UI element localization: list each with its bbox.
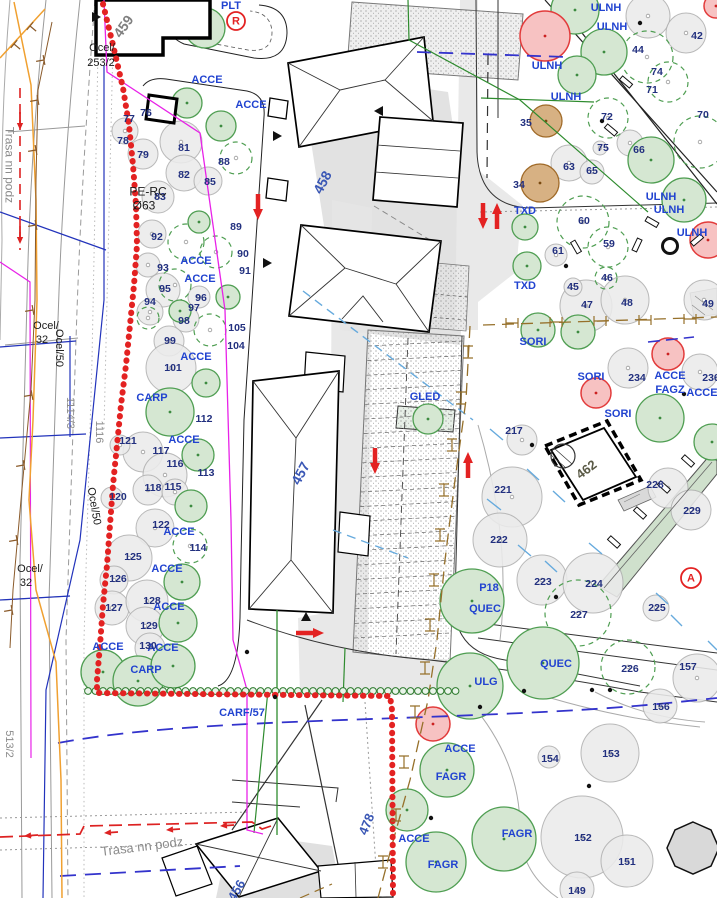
survey-point-11 [587, 784, 591, 788]
label-122-72: 122 [152, 519, 170, 531]
site-plan-canvas: RAPLTACCEACCEACCEACCEACCECARPACCEACCEACC… [0, 0, 717, 898]
label-TXD-23: TXD [514, 205, 536, 217]
label-75-98: 75 [597, 142, 609, 154]
label-79-43: 79 [137, 149, 149, 161]
tree-center [123, 129, 127, 133]
label-ULNH-21: ULNH [654, 204, 685, 216]
label-Ocel-50-135: Ocel/50 [53, 329, 65, 367]
label-234-109: 234 [628, 372, 646, 384]
tree-center [524, 226, 527, 229]
tree-center [181, 581, 184, 584]
label-1114-3-126: 1114/3 [64, 397, 76, 429]
label-FAGR-36: FAGR [436, 771, 467, 783]
tree-center [146, 263, 150, 267]
label-46-84: 46 [601, 272, 613, 284]
label-126-74: 126 [109, 573, 127, 585]
tree-center [208, 328, 212, 332]
porch-458-2 [266, 178, 288, 201]
label-ACCE-28: ACCE [654, 370, 685, 382]
label-CARF-57-14: CARF/57 [219, 707, 265, 719]
label-97-57: 97 [188, 302, 200, 314]
label-45-83: 45 [567, 281, 579, 293]
porch-458-1 [268, 98, 288, 119]
label-78-42: 78 [117, 135, 129, 147]
label-PE-RC-129: PE-RC [129, 185, 167, 199]
tree-center [190, 505, 193, 508]
label-118-69: 118 [145, 482, 162, 494]
label-Ocel--133: Ocel/ [17, 563, 44, 575]
tree-center [603, 51, 606, 54]
label-FAGR-39: FAGR [502, 828, 533, 840]
label-65-92: 65 [586, 165, 598, 177]
tree-center [172, 665, 175, 668]
label-72-96: 72 [601, 111, 613, 123]
label--63-130: Ø63 [133, 199, 156, 213]
tree-center [427, 418, 430, 421]
label-98-58: 98 [178, 315, 190, 327]
tree-center [666, 80, 670, 84]
label-92-52: 92 [151, 231, 163, 243]
site-plan-page: RAPLTACCEACCEACCEACCEACCECARPACCEACCEACC… [0, 0, 717, 898]
label-253-2-138: 253/2 [87, 57, 115, 69]
label-154-115: 154 [541, 753, 559, 765]
tree-center [406, 809, 409, 812]
tree-center [179, 310, 182, 313]
tree-center [626, 366, 630, 370]
label-71-95: 71 [646, 84, 658, 96]
label-221-100: 221 [494, 484, 512, 496]
tree-center [177, 622, 180, 625]
survey-point-3 [530, 443, 534, 447]
octagon-structure [667, 822, 717, 874]
label-82-45: 82 [178, 169, 190, 181]
label-ACCE-4: ACCE [184, 273, 215, 285]
tree-center [227, 296, 230, 299]
tree-center [576, 74, 579, 77]
hedge-shrub [85, 688, 92, 695]
label-120-70: 120 [109, 491, 127, 503]
tree-center [471, 600, 474, 603]
survey-point-8 [245, 650, 249, 654]
label-ACCE-9: ACCE [151, 563, 182, 575]
label-117-68: 117 [153, 445, 170, 457]
label-91-51: 91 [239, 265, 251, 277]
label-93-53: 93 [157, 262, 169, 274]
tree-center [173, 283, 177, 287]
label-113-64: 113 [198, 467, 215, 479]
survey-point-6 [478, 705, 482, 709]
tree-center [169, 411, 172, 414]
label-101-60: 101 [164, 362, 182, 374]
label-116-67: 116 [167, 458, 184, 470]
tree-center [148, 310, 152, 314]
tree-center [432, 723, 435, 726]
tree-center [205, 382, 208, 385]
label-125-73: 125 [124, 551, 142, 563]
route-arrow-1 [31, 835, 38, 836]
hedge-shrub [452, 688, 459, 695]
hedge-shrub [430, 688, 437, 695]
label-ACCE-37: ACCE [398, 833, 429, 845]
tree-center [711, 441, 714, 444]
label-153-114: 153 [602, 748, 620, 760]
route-arrow-4 [227, 825, 234, 826]
label-FAGZ-29: FAGZ [655, 384, 685, 396]
tree-center [683, 199, 686, 202]
label-89-49: 89 [230, 221, 242, 233]
label-128-76: 128 [143, 595, 161, 607]
survey-point-0 [638, 21, 642, 25]
label-112-63: 112 [196, 413, 213, 425]
survey-point-13 [608, 688, 612, 692]
label-227-106: 227 [570, 609, 588, 621]
hedge-shrub [400, 688, 407, 695]
label-QUEC-33: QUEC [540, 658, 572, 670]
label-ACCE-2: ACCE [235, 99, 266, 111]
label-105-62: 105 [228, 322, 246, 334]
label-157-117: 157 [679, 661, 697, 673]
label-59-88: 59 [603, 238, 615, 250]
label-104-61: 104 [227, 340, 245, 352]
tree-center [539, 182, 542, 185]
hedge-shrub [445, 688, 452, 695]
hedge-shrub [422, 688, 429, 695]
label-CARP-6: CARP [136, 392, 167, 404]
survey-point-5 [590, 688, 594, 692]
tree-center [667, 353, 670, 356]
tree-center [537, 329, 540, 332]
label-48-86: 48 [621, 297, 633, 309]
label-49-87: 49 [702, 298, 714, 310]
tree-center [163, 473, 167, 477]
label-SORI-25: SORI [520, 336, 547, 348]
survey-point-10 [522, 689, 526, 693]
label-63-91: 63 [563, 161, 575, 173]
building-458-annex [373, 117, 463, 207]
label-Ocel--137: Ocel/ [89, 42, 116, 54]
tree-center [220, 125, 223, 128]
hedge-shrub [392, 688, 399, 695]
label-32-134: 32 [20, 577, 32, 589]
label-77-41: 77 [123, 113, 135, 125]
survey-point-4 [554, 595, 558, 599]
label-SORI-26: SORI [578, 371, 605, 383]
tree-center [650, 159, 653, 162]
label-121-71: 121 [119, 435, 137, 447]
tree-center [234, 156, 238, 160]
label-ACCE-11: ACCE [92, 641, 123, 653]
label-ULNH-20: ULNH [646, 191, 677, 203]
label-FAGR-38: FAGR [428, 859, 459, 871]
tree-center [645, 55, 649, 59]
label-ACCE-7: ACCE [168, 434, 199, 446]
label-94-54: 94 [144, 296, 156, 308]
label-114-65: 114 [190, 542, 207, 554]
label-76-40: 76 [140, 107, 152, 119]
route-arrow-2 [111, 832, 118, 833]
label-129-77: 129 [140, 620, 158, 632]
label-152-113: 152 [574, 832, 592, 844]
label-81-44: 81 [178, 142, 190, 154]
label-ULG-34: ULG [474, 676, 497, 688]
label-513-2-128: 513/2 [3, 730, 15, 758]
hedge-shrub [437, 688, 444, 695]
label-34-79: 34 [513, 179, 525, 191]
label-SORI-27: SORI [605, 408, 632, 420]
tree-center [526, 265, 529, 268]
label-85-47: 85 [204, 176, 216, 188]
survey-point-7 [273, 695, 277, 699]
tree-center [595, 392, 598, 395]
tree-center [646, 14, 650, 18]
label-ACCE-5: ACCE [180, 351, 211, 363]
tree-center [141, 450, 145, 454]
label-61-90: 61 [552, 245, 564, 257]
tree-center [684, 31, 688, 35]
tree-center [102, 671, 105, 674]
label-ACCE-35: ACCE [444, 743, 475, 755]
label-88-48: 88 [218, 156, 230, 168]
label-ULNH-19: ULNH [551, 91, 582, 103]
label-115-66: 115 [165, 481, 182, 493]
label-PLT-0: PLT [221, 0, 241, 12]
label-GLED-15: GLED [410, 391, 441, 403]
survey-point-9 [429, 816, 433, 820]
label-ULNH-17: ULNH [597, 21, 628, 33]
porch-457 [338, 512, 370, 556]
label-149-111: 149 [568, 885, 586, 897]
label-224-103: 224 [585, 578, 603, 590]
label-TXD-24: TXD [514, 280, 536, 292]
tree-center [574, 9, 577, 12]
marker-R-letter: R [232, 16, 240, 28]
hedge-shrub [407, 688, 414, 695]
tree-center [695, 676, 699, 680]
tree-center [520, 438, 524, 442]
tree-center [628, 141, 632, 145]
tree-center [137, 680, 140, 683]
label-151-112: 151 [618, 856, 636, 868]
label-35-80: 35 [520, 117, 532, 129]
label-226-105: 226 [621, 663, 639, 675]
label-ACCE-1: ACCE [191, 74, 222, 86]
tree-center [698, 140, 702, 144]
label-90-50: 90 [237, 248, 249, 260]
label-ACCE-30: ACCE [686, 387, 717, 399]
tree-y-27 [626, 0, 670, 38]
hedge-shrub [415, 688, 422, 695]
label-1116-127: 1116 [93, 421, 105, 444]
marker-A-letter: A [687, 573, 695, 585]
tree-center [198, 221, 201, 224]
label-47-85: 47 [581, 299, 593, 311]
tree-center [659, 417, 662, 420]
label-95-55: 95 [159, 283, 171, 295]
survey-point-2 [564, 264, 568, 268]
label-70-94: 70 [697, 109, 709, 121]
label-217-99: 217 [505, 425, 523, 437]
label-130-78: 130 [139, 640, 157, 652]
label-ULNH-16: ULNH [591, 2, 622, 14]
label-CARP-13: CARP [130, 664, 161, 676]
label-60-89: 60 [578, 215, 590, 227]
label-156-116: 156 [652, 701, 670, 713]
tree-center [469, 685, 472, 688]
label-99-59: 99 [164, 335, 176, 347]
tree-center [577, 331, 580, 334]
label-32-132: 32 [36, 334, 48, 346]
tree-center [544, 35, 547, 38]
label-P18-31: P18 [479, 582, 499, 594]
route-arrow-3 [173, 829, 180, 830]
label-223-102: 223 [534, 576, 552, 588]
label-74-97: 74 [651, 66, 663, 78]
tree-center [146, 316, 150, 320]
label-222-101: 222 [490, 534, 508, 546]
label-ULNH-22: ULNH [677, 227, 708, 239]
label-42-81: 42 [691, 30, 703, 42]
label-228-107: 228 [646, 479, 664, 491]
label-ULNH-18: ULNH [532, 60, 563, 72]
label-ACCE-3: ACCE [180, 255, 211, 267]
label-44-82: 44 [632, 44, 644, 56]
label-Trasa-nn-podz-125: Trasa nn podz [2, 127, 16, 203]
tree-center [186, 102, 189, 105]
tree-center [184, 240, 188, 244]
label-229-108: 229 [683, 505, 701, 517]
label-127-75: 127 [105, 602, 123, 614]
label-QUEC-32: QUEC [469, 603, 501, 615]
label-225-104: 225 [648, 602, 666, 614]
tree-center [197, 454, 200, 457]
label-236-110: 236 [702, 372, 717, 384]
label-66-93: 66 [633, 144, 645, 156]
